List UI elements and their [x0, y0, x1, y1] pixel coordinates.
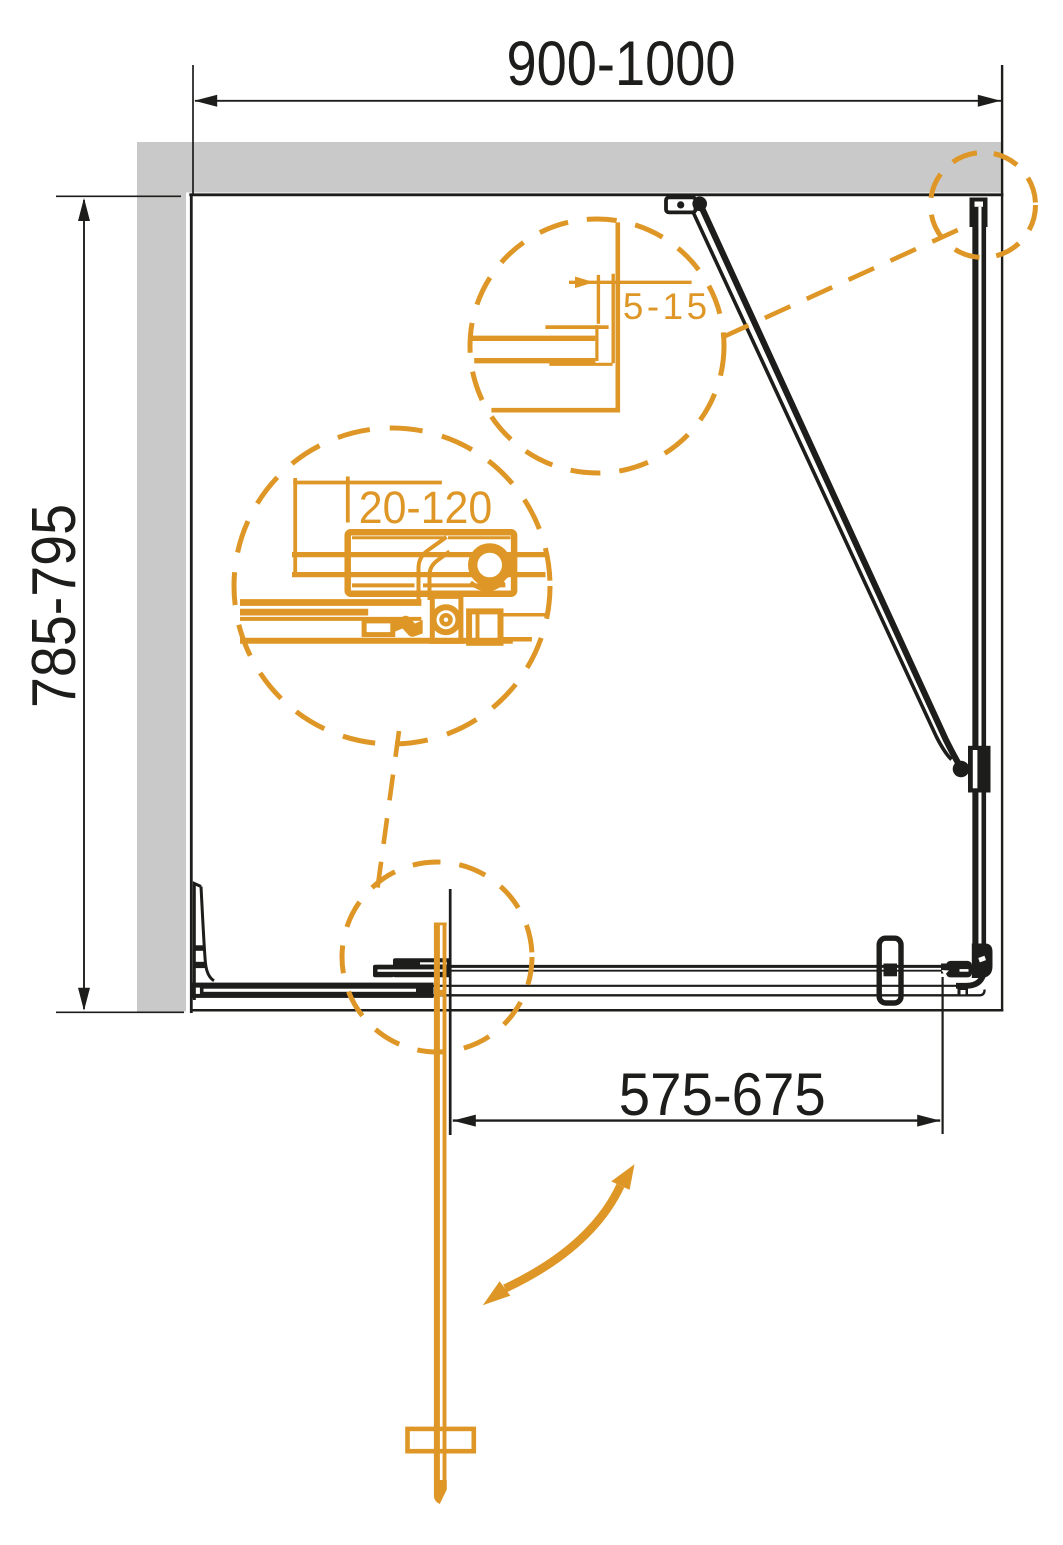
svg-text:785-795: 785-795 — [19, 504, 89, 708]
svg-text:20-120: 20-120 — [359, 482, 493, 533]
svg-text:900-1000: 900-1000 — [507, 29, 736, 99]
svg-text:575-675: 575-675 — [619, 1061, 826, 1128]
svg-text:5-15: 5-15 — [623, 286, 707, 327]
